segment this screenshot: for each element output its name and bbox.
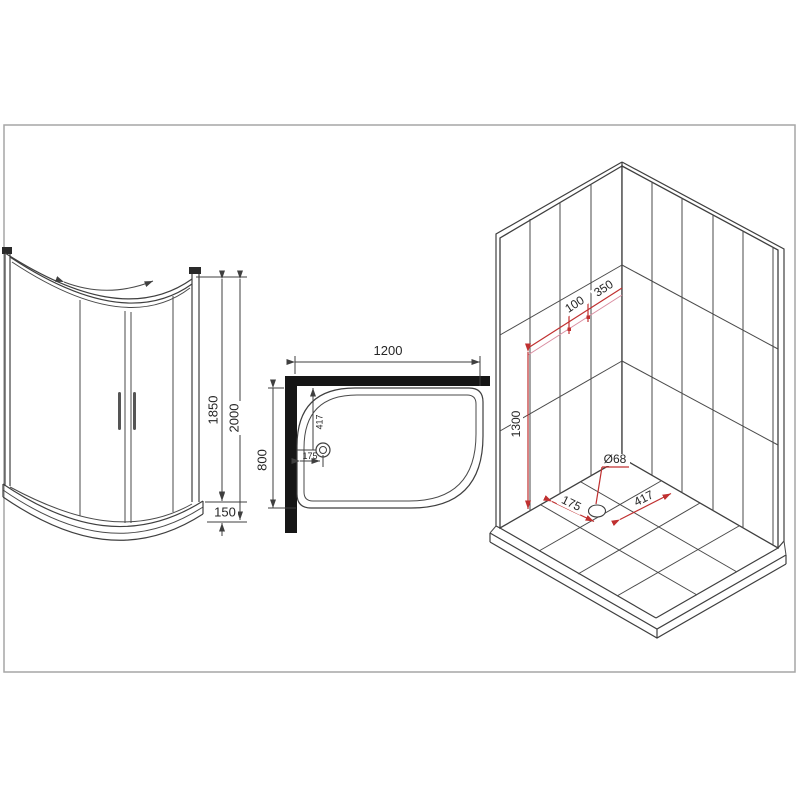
door-handle-right <box>133 392 136 430</box>
right-post-cap <box>189 267 201 274</box>
top-rail <box>5 253 192 307</box>
iso-wall-left <box>500 166 622 528</box>
dim-drain-y-label: 417 <box>314 414 324 429</box>
dim-depth-label: 800 <box>254 449 269 471</box>
dim-wall-height-label: 1300 <box>509 410 523 437</box>
front-view-dimensions: 1850 2000 150 <box>196 277 247 536</box>
technical-drawing: 1850 2000 150 <box>0 0 800 800</box>
dim-glass-height-label: 1850 <box>205 396 220 425</box>
iso-floor <box>490 526 786 638</box>
dim-width-label: 1200 <box>374 343 403 358</box>
dim-drain-diameter-label: Ø68 <box>604 452 627 466</box>
dim-drain-x-label: 175 <box>302 451 317 461</box>
plan-wall-left <box>285 376 297 533</box>
front-view: 1850 2000 150 <box>2 247 247 540</box>
dim-tray-height-label: 150 <box>214 504 236 519</box>
top-view: 1200 800 417 175 <box>254 343 490 533</box>
plan-wall-top <box>285 376 490 386</box>
iso-drain <box>589 505 606 517</box>
dim-total-height-label: 2000 <box>226 404 241 433</box>
technical-drawing-page: 1850 2000 150 <box>0 0 800 800</box>
glass-panels <box>80 296 173 523</box>
right-frame-post <box>189 267 201 502</box>
isometric-view: 100 350 1300 Ø68 175 <box>490 162 786 638</box>
left-post-cap <box>2 247 12 254</box>
door-handle-left <box>118 392 121 430</box>
